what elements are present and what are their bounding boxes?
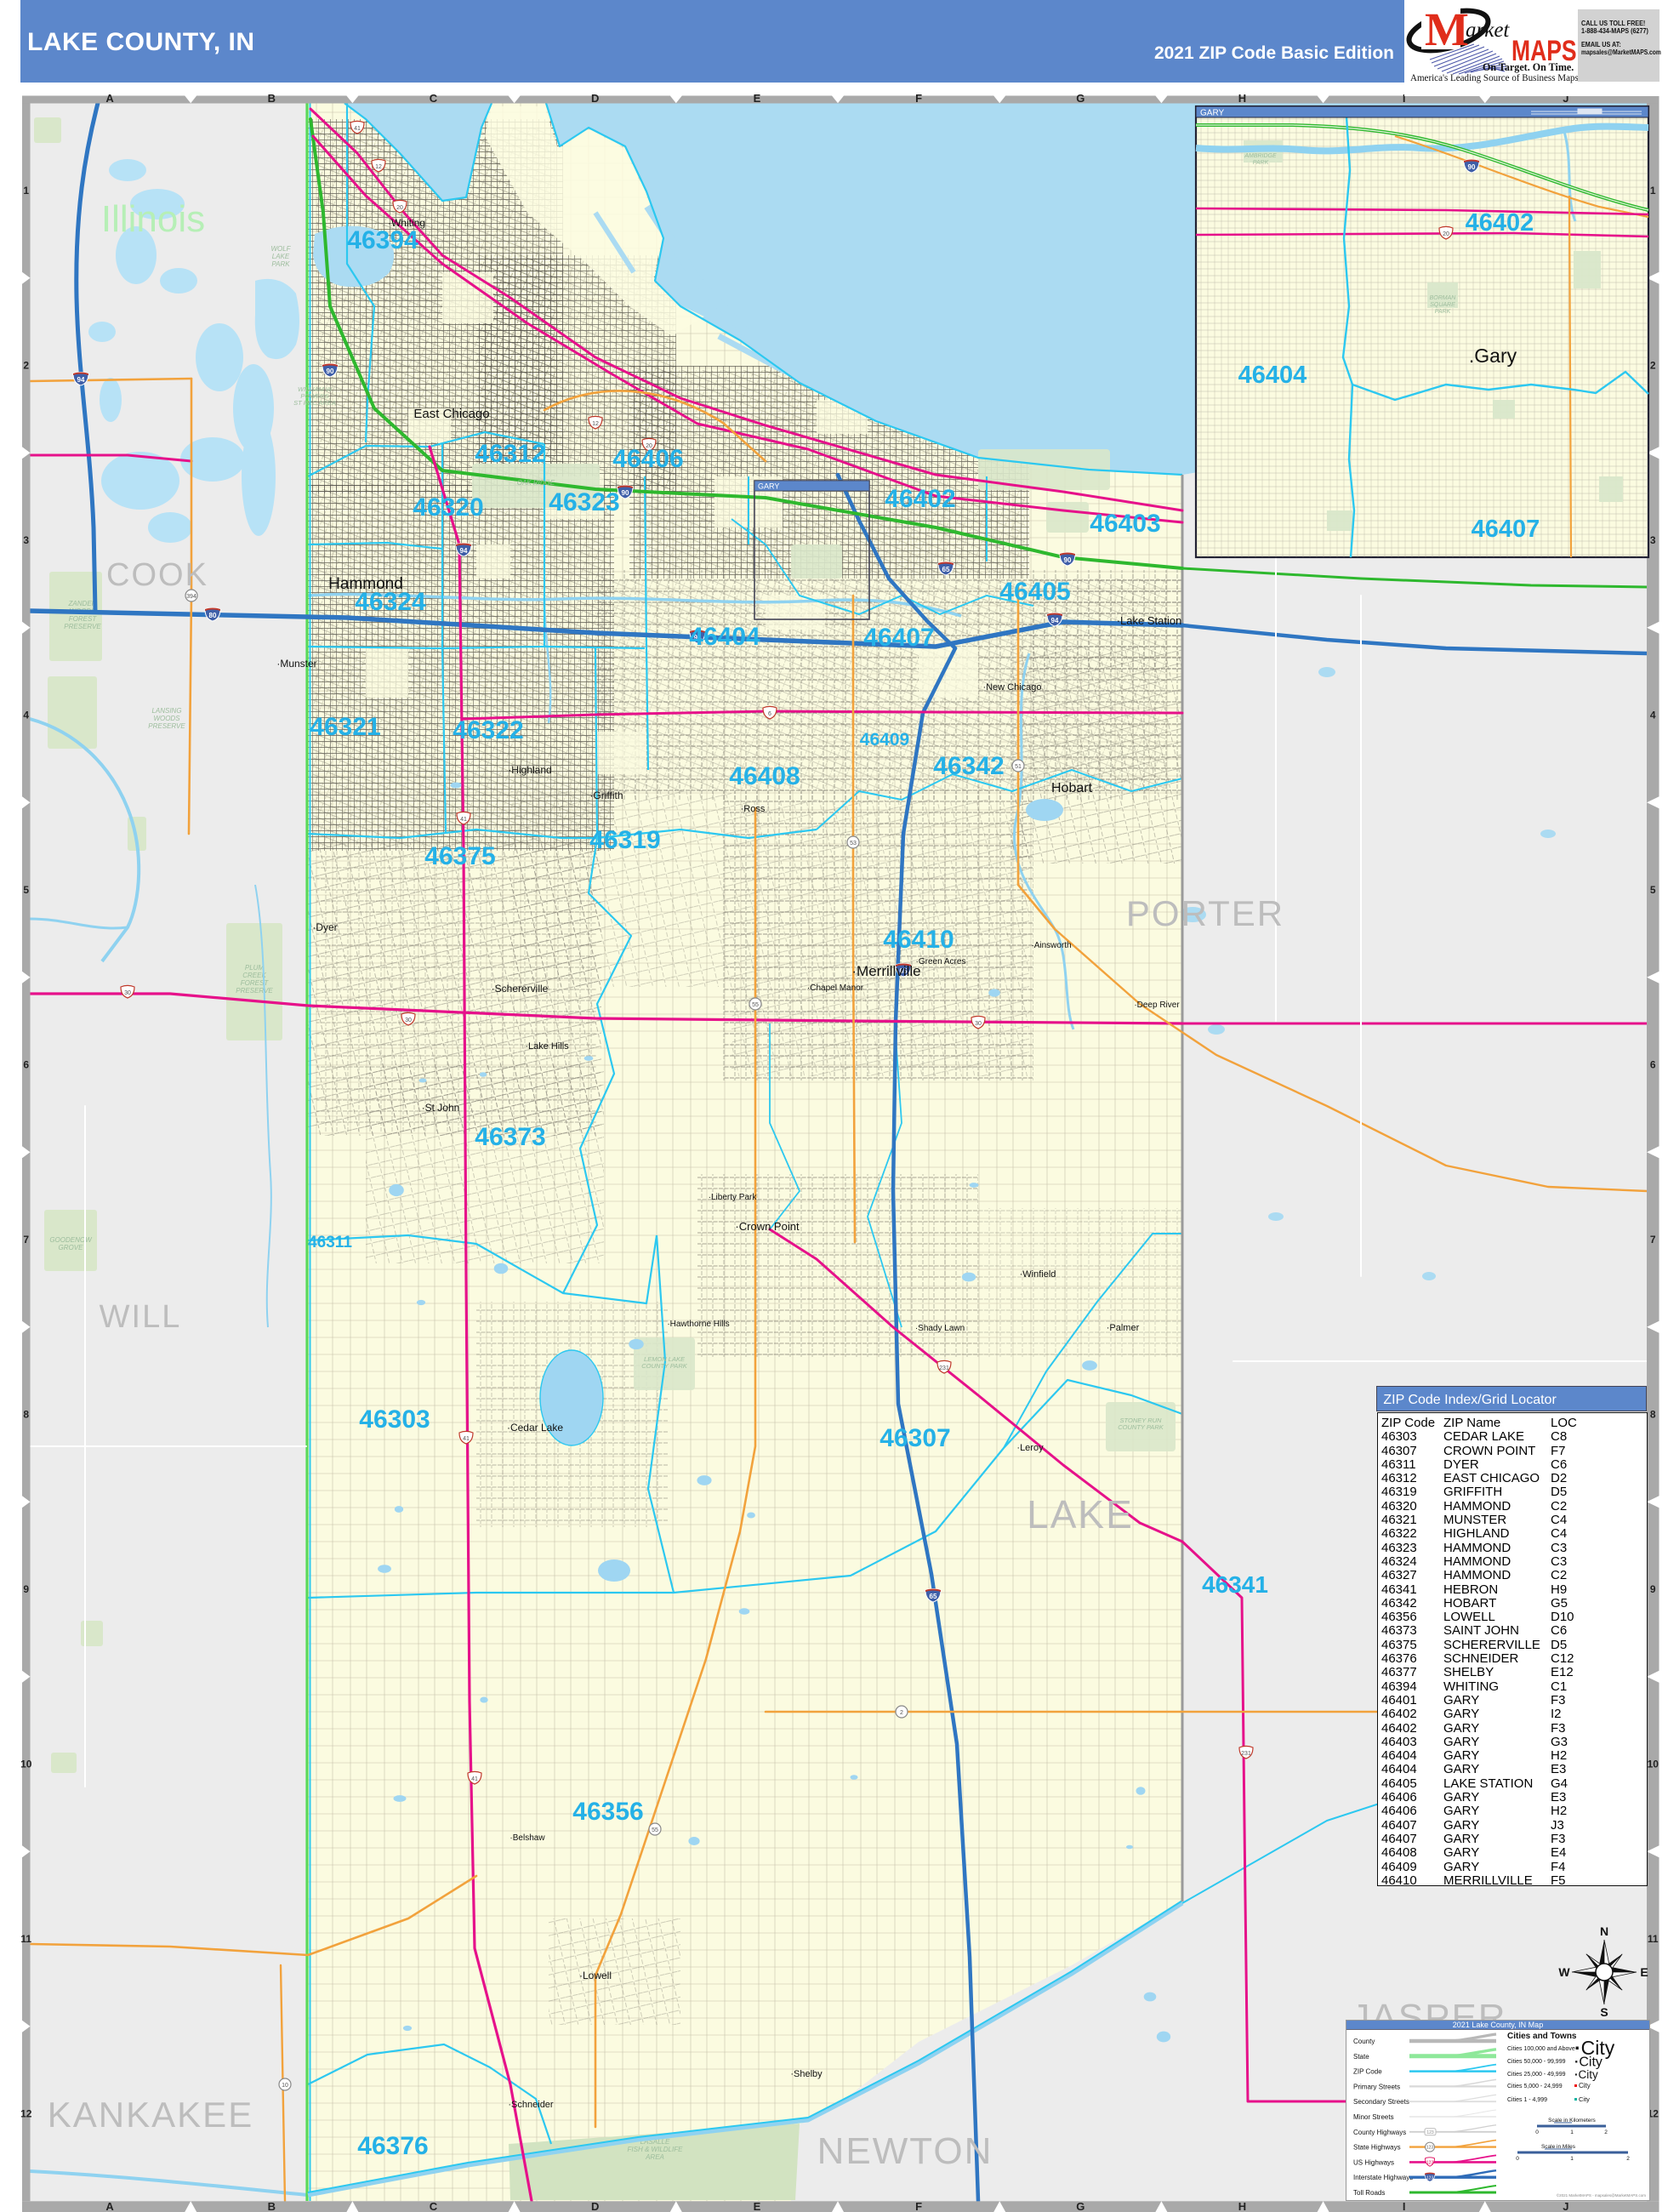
svg-text:46405: 46405 <box>999 578 1070 606</box>
svg-text:KANKAKEE: KANKAKEE <box>48 2095 253 2135</box>
svg-text:PORTER: PORTER <box>1126 893 1284 933</box>
svg-text:Cities 1 - 4,999: Cities 1 - 4,999 <box>1507 2097 1547 2103</box>
svg-text:mapsales@MarketMAPS.com: mapsales@MarketMAPS.com <box>1581 48 1661 56</box>
svg-text:46312: 46312 <box>475 440 545 468</box>
svg-text:H: H <box>1238 2200 1246 2212</box>
svg-text:Secondary Streets: Secondary Streets <box>1353 2098 1409 2106</box>
svg-text:46376: 46376 <box>357 2132 428 2160</box>
svg-text:NEWTON: NEWTON <box>817 2130 993 2172</box>
svg-text:2: 2 <box>1650 360 1656 372</box>
svg-text:Cities and Towns: Cities and Towns <box>1507 2032 1577 2041</box>
svg-text:Toll Roads: Toll Roads <box>1353 2189 1385 2197</box>
svg-text:0: 0 <box>1535 2129 1539 2135</box>
svg-text:A: A <box>105 92 114 105</box>
svg-text:State Highways: State Highways <box>1353 2144 1401 2152</box>
svg-text:W: W <box>1558 1965 1570 1979</box>
svg-text:S: S <box>1600 2005 1608 2019</box>
svg-text:H: H <box>1238 92 1246 105</box>
svg-text:20: 20 <box>1443 231 1449 237</box>
svg-text:America's Leading Source of B: America's Leading Source of Business Map… <box>1410 73 1579 83</box>
svg-text:46409: 46409 <box>860 730 909 750</box>
svg-text:N: N <box>1600 1924 1608 1938</box>
svg-text:Cities 5,000 - 24,999: Cities 5,000 - 24,999 <box>1507 2084 1563 2089</box>
svg-text:46404: 46404 <box>689 623 760 651</box>
svg-text:COOK: COOK <box>106 557 208 593</box>
svg-text:90: 90 <box>1064 556 1072 564</box>
svg-text:20: 20 <box>396 205 403 211</box>
svg-text:90: 90 <box>327 368 334 375</box>
svg-text:123: 123 <box>1426 2130 1434 2135</box>
svg-text:4: 4 <box>23 710 29 721</box>
svg-text:.Gary: .Gary <box>1469 345 1517 367</box>
svg-text:STONEY RUNCOUNTY PARK: STONEY RUNCOUNTY PARK <box>1118 1417 1164 1431</box>
svg-text:·Highland: ·Highland <box>508 764 551 776</box>
svg-text:Primary Streets: Primary Streets <box>1353 2083 1400 2090</box>
svg-text:I: I <box>1403 2200 1406 2212</box>
svg-text:LAKE: LAKE <box>1027 1492 1134 1536</box>
svg-text:90: 90 <box>1468 163 1476 171</box>
svg-text:12: 12 <box>375 164 382 170</box>
svg-text:6: 6 <box>768 711 771 717</box>
svg-text:10: 10 <box>20 1759 32 1770</box>
svg-text:2: 2 <box>1626 2156 1630 2162</box>
svg-text:OAK RIDGE: OAK RIDGE <box>517 479 555 487</box>
svg-text:·Green Acres: ·Green Acres <box>916 957 966 966</box>
svg-text:10: 10 <box>282 2083 288 2089</box>
svg-text:123: 123 <box>1426 2146 1434 2151</box>
svg-text:2: 2 <box>23 360 29 372</box>
svg-text:12: 12 <box>20 2108 32 2120</box>
svg-text:WOLFLAKEPARK: WOLFLAKEPARK <box>270 245 291 268</box>
svg-text:46322: 46322 <box>453 716 523 744</box>
svg-text:46404: 46404 <box>1238 362 1307 389</box>
svg-text:B: B <box>268 2200 276 2212</box>
svg-text:·City: ·City <box>1574 2055 1603 2070</box>
svg-text:arket: arket <box>1466 19 1510 42</box>
svg-text:County: County <box>1353 2038 1375 2045</box>
svg-text:10: 10 <box>1648 1759 1659 1770</box>
svg-text:1-888-434-MAPS (6277): 1-888-434-MAPS (6277) <box>1581 27 1648 36</box>
svg-text:M: M <box>1425 3 1469 55</box>
svg-text:D: D <box>591 92 599 105</box>
svg-text:94: 94 <box>460 547 468 555</box>
svg-text:G: G <box>1076 2200 1084 2212</box>
svg-text:231: 231 <box>1241 1751 1251 1757</box>
svg-text:·Hawthorne Hills: ·Hawthorne Hills <box>667 1320 729 1329</box>
svg-text:7: 7 <box>23 1234 29 1246</box>
svg-text:·Schneider: ·Schneider <box>508 2100 554 2110</box>
svg-text:Illinois: Illinois <box>101 198 205 240</box>
svg-text:J: J <box>1563 2200 1568 2212</box>
svg-text:E: E <box>754 2200 761 2212</box>
svg-text:231: 231 <box>939 1365 949 1371</box>
svg-text:ZIP Code: ZIP Code <box>1353 2068 1382 2076</box>
svg-text:46373: 46373 <box>475 1123 545 1151</box>
svg-text:41: 41 <box>471 1776 478 1782</box>
svg-text:46323: 46323 <box>549 488 619 516</box>
svg-text:·Winfield: ·Winfield <box>1020 1269 1056 1280</box>
svg-text:90: 90 <box>622 489 629 497</box>
svg-text:·Munster: ·Munster <box>276 658 316 670</box>
svg-text:9: 9 <box>1650 1583 1656 1595</box>
svg-text:1: 1 <box>23 185 29 197</box>
svg-text:6: 6 <box>23 1059 29 1071</box>
svg-text:46394: 46394 <box>347 226 418 254</box>
svg-text:Hammond: Hammond <box>328 575 403 593</box>
svg-text:GARY: GARY <box>758 482 779 491</box>
svg-text:E: E <box>1640 1965 1648 1979</box>
svg-text:State: State <box>1353 2053 1369 2061</box>
svg-text:53: 53 <box>850 841 857 847</box>
svg-text:46410: 46410 <box>883 926 954 954</box>
svg-text:55: 55 <box>752 1002 759 1008</box>
svg-text:4: 4 <box>1650 710 1656 721</box>
svg-text:1: 1 <box>1570 2129 1574 2135</box>
svg-text:2: 2 <box>900 1710 903 1716</box>
svg-text:E: E <box>754 92 761 105</box>
svg-text:3: 3 <box>23 534 29 546</box>
svg-text:LEMON LAKECOUNTY PARK: LEMON LAKECOUNTY PARK <box>641 1355 687 1370</box>
svg-text:Cities 100,000 and Above: Cities 100,000 and Above <box>1507 2046 1575 2052</box>
svg-text:Interstate Highways: Interstate Highways <box>1353 2174 1413 2181</box>
svg-text:46403: 46403 <box>1090 510 1160 538</box>
svg-text:11: 11 <box>20 1933 31 1945</box>
svg-text:12: 12 <box>592 421 599 427</box>
svg-text:·Deep River: ·Deep River <box>1134 1001 1180 1010</box>
svg-text:46342: 46342 <box>933 752 1004 780</box>
svg-text:46341: 46341 <box>1202 1571 1268 1598</box>
svg-text:F: F <box>915 2200 922 2212</box>
svg-text:51: 51 <box>1015 764 1022 770</box>
svg-text:5: 5 <box>23 884 29 896</box>
svg-text:8: 8 <box>1650 1409 1656 1421</box>
svg-text:46319: 46319 <box>589 826 660 854</box>
svg-text:1: 1 <box>1650 185 1656 197</box>
svg-text:1: 1 <box>1570 2156 1574 2162</box>
svg-text:·Crown Point: ·Crown Point <box>735 1220 800 1233</box>
svg-text:394: 394 <box>186 594 196 600</box>
svg-text:7: 7 <box>1650 1234 1656 1246</box>
svg-text:·Dyer: ·Dyer <box>312 921 337 933</box>
svg-text:·New Chicago: ·New Chicago <box>982 682 1041 693</box>
svg-text:·Chapel Manor: ·Chapel Manor <box>807 983 864 993</box>
svg-text:94: 94 <box>77 376 85 384</box>
svg-text:C: C <box>430 2200 438 2212</box>
svg-text:Hobart: Hobart <box>1051 781 1093 795</box>
svg-text:46402: 46402 <box>1466 209 1534 237</box>
svg-text:30: 30 <box>124 990 131 996</box>
svg-text:On Target. On Time.: On Target. On Time. <box>1483 61 1574 73</box>
svg-text:·Leroy: ·Leroy <box>1016 1443 1044 1453</box>
svg-text:30: 30 <box>405 1018 412 1023</box>
svg-text:·Whiting: ·Whiting <box>388 217 425 229</box>
svg-text:46320: 46320 <box>413 493 483 522</box>
svg-text:·Griffith: ·Griffith <box>589 790 623 801</box>
svg-text:Cities 50,000 - 99,999: Cities 50,000 - 99,999 <box>1507 2059 1566 2065</box>
svg-text:46356: 46356 <box>572 1798 643 1826</box>
svg-text:B: B <box>268 92 276 105</box>
svg-text:30: 30 <box>975 1021 982 1027</box>
svg-text:46407: 46407 <box>863 624 934 652</box>
svg-text:Cities 25,000 - 49,999: Cities 25,000 - 49,999 <box>1507 2072 1566 2078</box>
svg-text:41: 41 <box>460 817 467 823</box>
svg-text:55: 55 <box>652 1827 658 1833</box>
svg-text:94: 94 <box>1051 617 1059 624</box>
svg-text:F: F <box>915 92 922 105</box>
svg-text:46311: 46311 <box>308 1234 352 1251</box>
svg-text:41: 41 <box>463 1436 470 1442</box>
svg-text:123: 123 <box>1426 2175 1434 2181</box>
svg-text:Minor Streets: Minor Streets <box>1353 2113 1394 2121</box>
svg-text:5: 5 <box>1650 884 1656 896</box>
svg-text:City: City <box>1579 2082 1591 2089</box>
svg-text:·Lake Hills: ·Lake Hills <box>525 1041 569 1052</box>
svg-text:·Schererville: ·Schererville <box>492 983 549 995</box>
svg-text:·Lake Station: ·Lake Station <box>1117 614 1182 627</box>
svg-text:©2021 MarketMAPS - mapsales@Ma: ©2021 MarketMAPS - mapsales@MarketMAPS.c… <box>1557 2192 1646 2198</box>
svg-text:46303: 46303 <box>359 1405 430 1434</box>
svg-text:11: 11 <box>1648 1933 1659 1945</box>
svg-text:80: 80 <box>209 612 217 619</box>
svg-text:US Highways: US Highways <box>1353 2158 1394 2166</box>
svg-text:County Highways: County Highways <box>1353 2129 1406 2136</box>
svg-text:WILL: WILL <box>100 1299 182 1335</box>
svg-text:·Ainsworth: ·Ainsworth <box>1031 941 1071 950</box>
svg-text:·Shelby: ·Shelby <box>790 2069 823 2079</box>
svg-text:46375: 46375 <box>424 842 495 870</box>
svg-text:46407: 46407 <box>1472 516 1540 543</box>
svg-text:·Liberty Park: ·Liberty Park <box>709 1193 758 1202</box>
svg-text:·Merrillville: ·Merrillville <box>851 963 920 979</box>
svg-text:·City: ·City <box>1574 2068 1598 2081</box>
svg-text:123: 123 <box>1426 2160 1434 2165</box>
svg-text:D: D <box>591 2200 599 2212</box>
svg-text:46406: 46406 <box>612 445 683 473</box>
svg-text:·Cedar Lake: ·Cedar Lake <box>507 1422 563 1434</box>
svg-text:·Ross: ·Ross <box>741 804 766 814</box>
svg-text:41: 41 <box>354 126 361 132</box>
svg-text:·Belshaw: ·Belshaw <box>510 1833 545 1843</box>
svg-text:6: 6 <box>1650 1059 1656 1071</box>
svg-text:East Chicago: East Chicago <box>413 407 489 421</box>
svg-text:·St John: ·St John <box>422 1102 460 1114</box>
svg-text:0: 0 <box>1516 2156 1519 2162</box>
svg-text:46408: 46408 <box>729 762 800 790</box>
svg-text:G: G <box>1076 92 1084 105</box>
svg-text:65: 65 <box>930 1593 937 1600</box>
svg-text:·Palmer: ·Palmer <box>1107 1323 1140 1333</box>
svg-text:·Lowell: ·Lowell <box>579 1970 612 1981</box>
svg-text:2: 2 <box>1604 2129 1608 2135</box>
svg-text:·Shady Lawn: ·Shady Lawn <box>915 1324 965 1333</box>
svg-text:8: 8 <box>23 1409 29 1421</box>
svg-text:C: C <box>430 92 438 105</box>
svg-text:65: 65 <box>942 566 950 573</box>
svg-text:46307: 46307 <box>880 1424 950 1452</box>
svg-text:9: 9 <box>23 1583 29 1595</box>
svg-text:City: City <box>1579 2095 1590 2103</box>
svg-text:GARY: GARY <box>1200 109 1224 118</box>
svg-text:3: 3 <box>1650 534 1656 546</box>
svg-text:46402: 46402 <box>885 485 955 513</box>
svg-text:A: A <box>105 2200 114 2212</box>
svg-text:46321: 46321 <box>310 713 380 741</box>
